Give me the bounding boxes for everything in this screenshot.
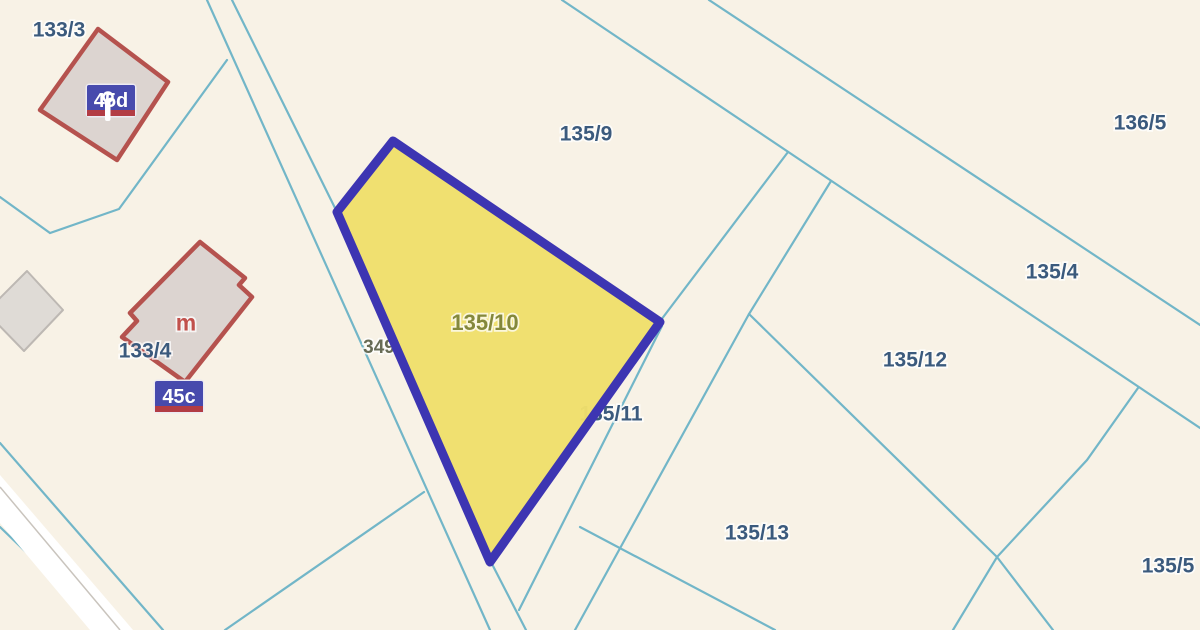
- pole-symbol: [105, 100, 111, 121]
- parcel-label-135-12: 135/12: [883, 349, 947, 372]
- parcel-label-136-5: 136/5: [1114, 112, 1167, 135]
- parcel-label-135-5: 135/5: [1142, 555, 1195, 578]
- cadastral-map[interactable]: 349135/11133/3133/4135/9136/5135/4135/12…: [0, 0, 1200, 630]
- parcel-label-133-4: 133/4: [119, 340, 172, 363]
- cadastral-map-viewer: 349135/11133/3133/4135/9136/5135/4135/12…: [0, 0, 1200, 630]
- parcel-label-135-10: 135/10: [451, 310, 518, 335]
- parcel-label-133-3: 133/3: [33, 19, 86, 42]
- parcel-label-135-4: 135/4: [1026, 261, 1079, 284]
- parcel-label-135-9: 135/9: [560, 123, 613, 146]
- parcel-label-135-13: 135/13: [725, 522, 789, 545]
- house-letter-label: m: [176, 309, 196, 335]
- address-badge-45c-label: 45c: [162, 386, 195, 408]
